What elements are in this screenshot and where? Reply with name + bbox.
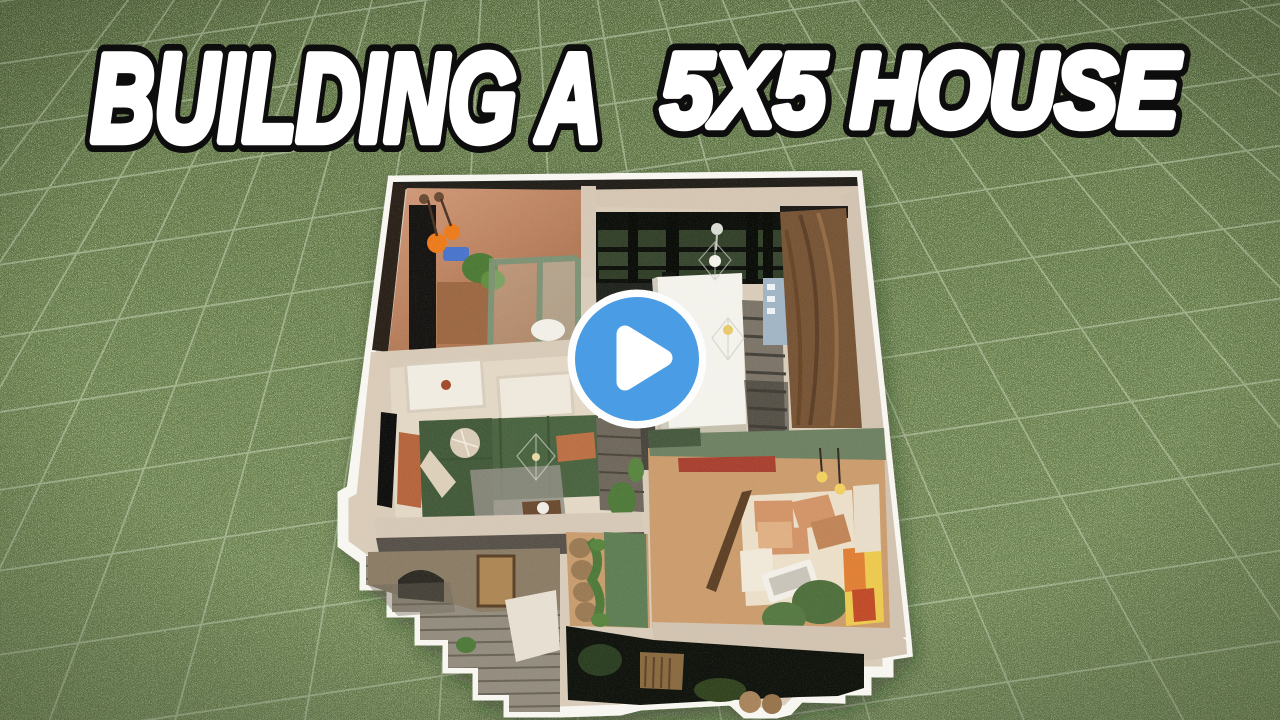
svg-text:5X5 HOUSE: 5X5 HOUSE bbox=[662, 33, 1181, 149]
svg-text:BUILDING A: BUILDING A bbox=[91, 30, 601, 168]
